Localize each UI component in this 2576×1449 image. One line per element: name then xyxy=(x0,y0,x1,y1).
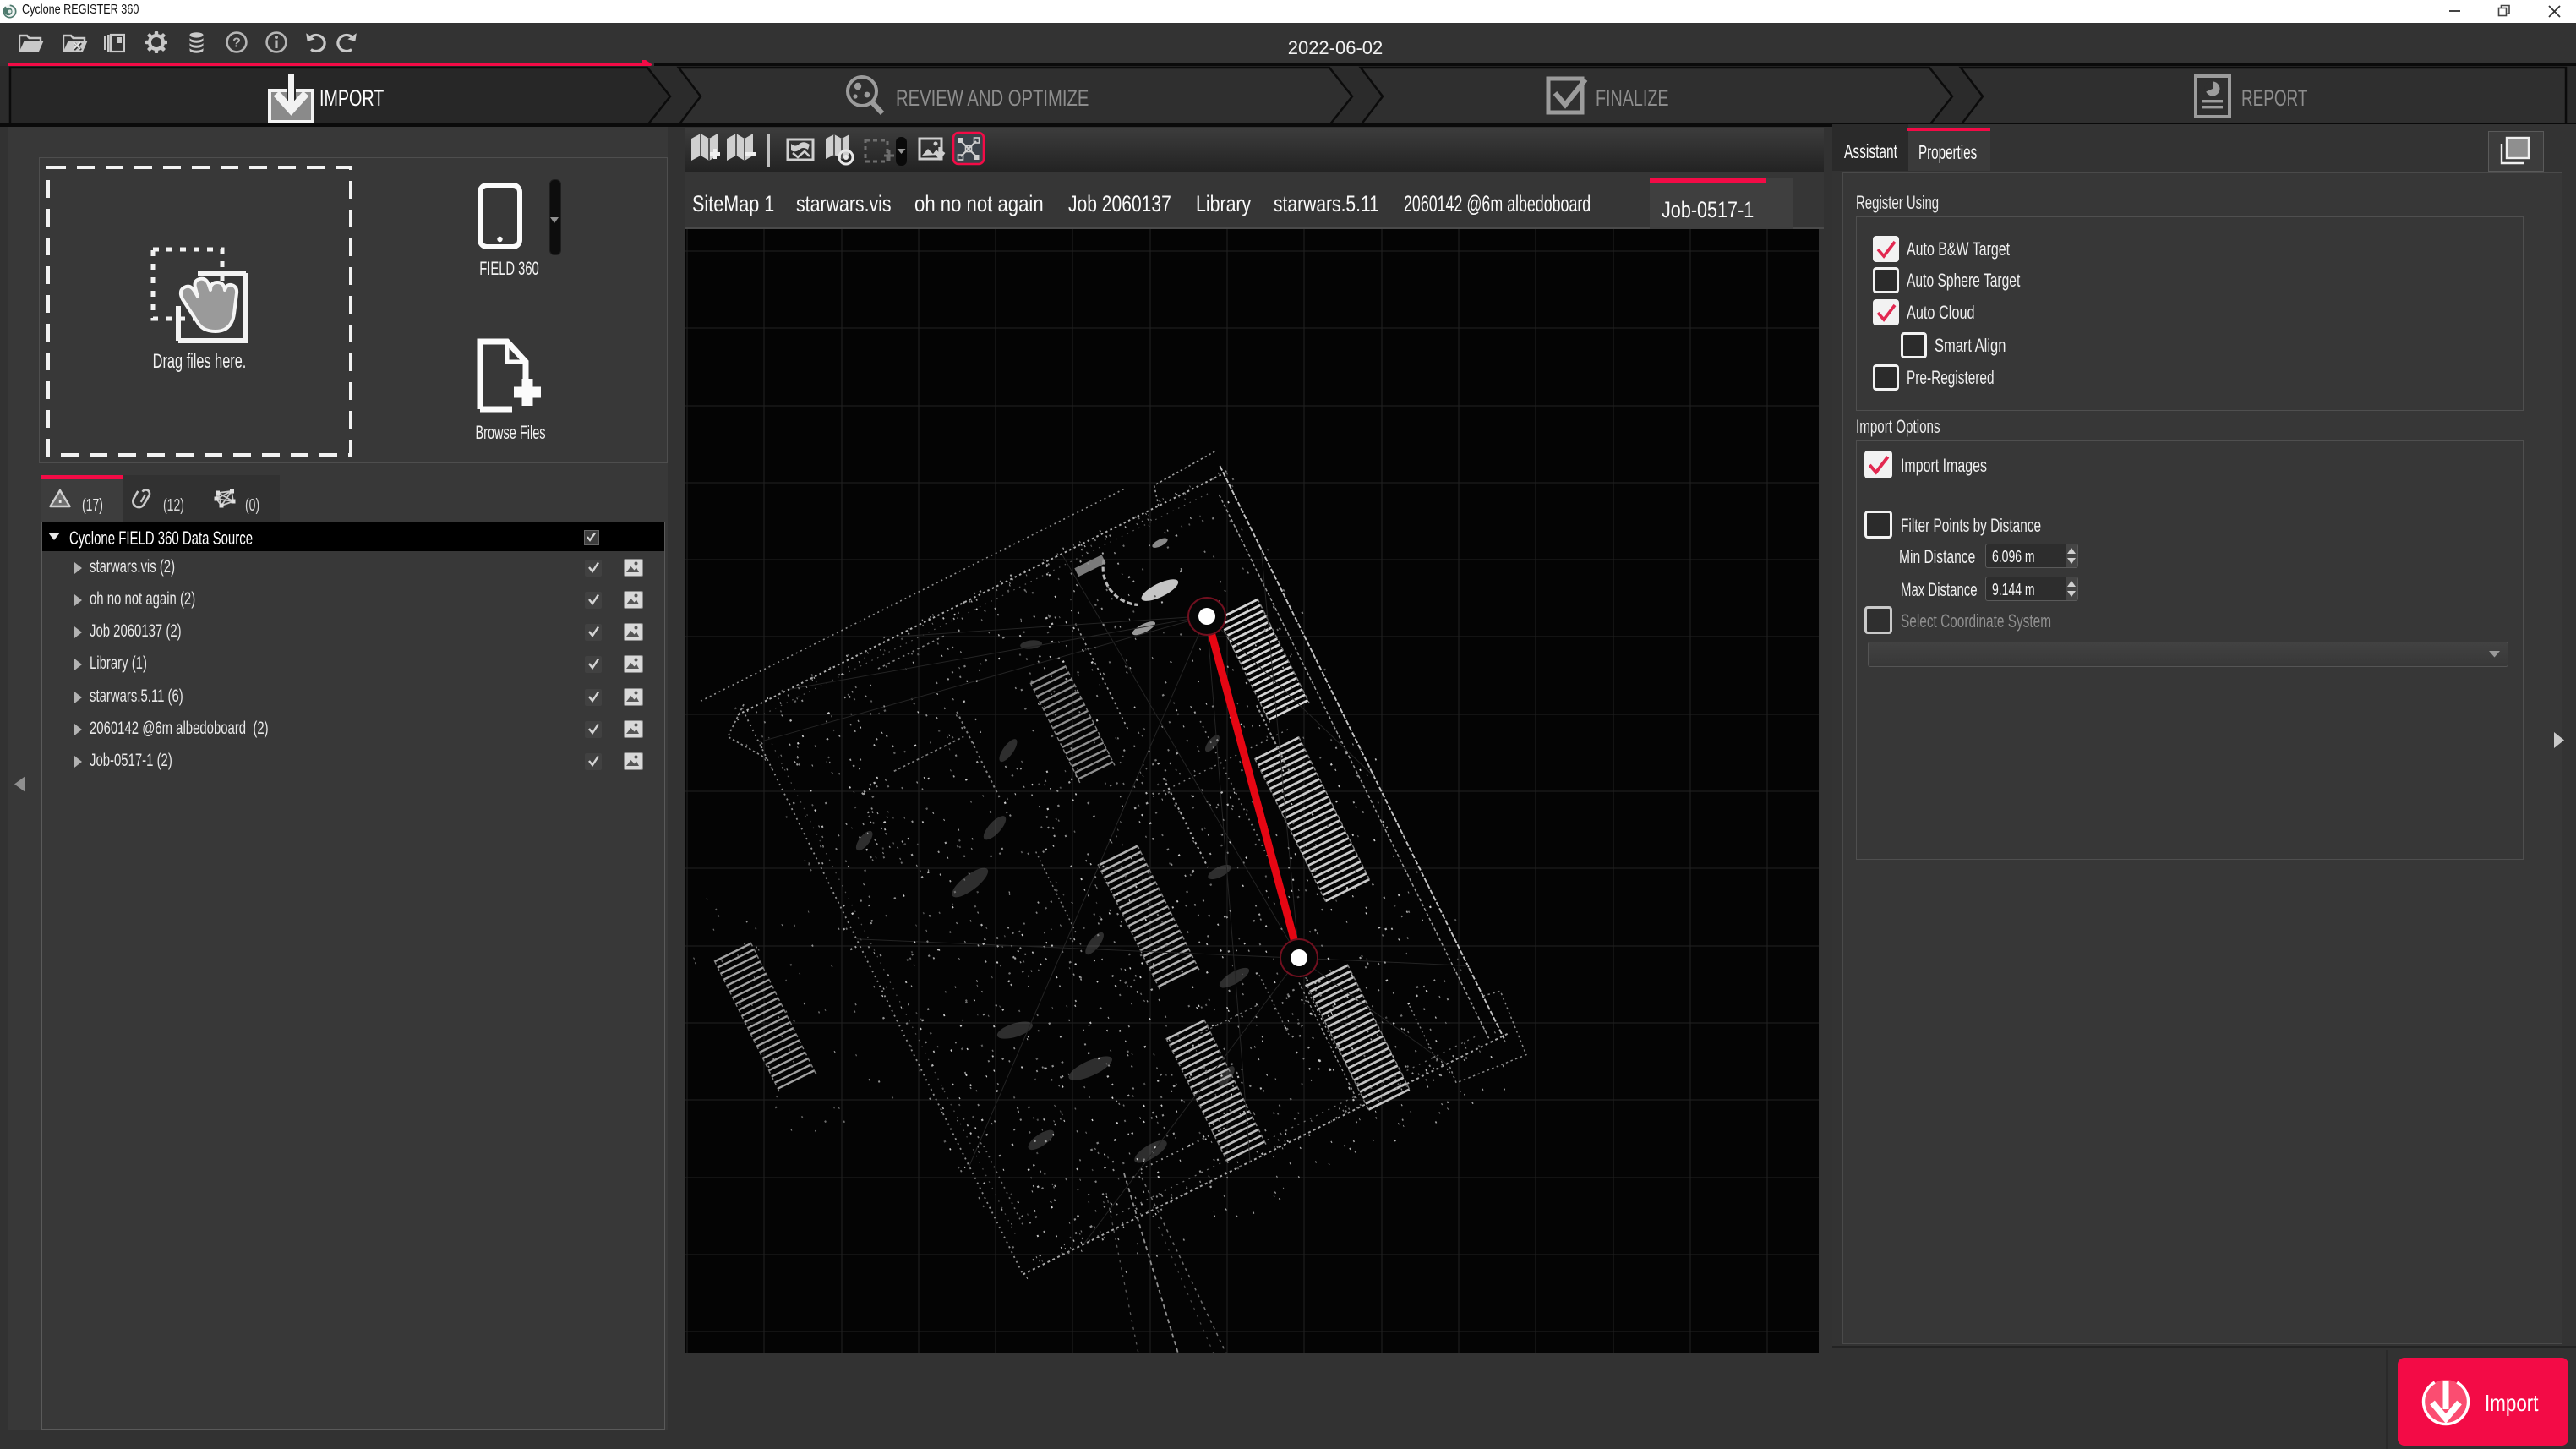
svg-text:?: ? xyxy=(232,36,241,51)
